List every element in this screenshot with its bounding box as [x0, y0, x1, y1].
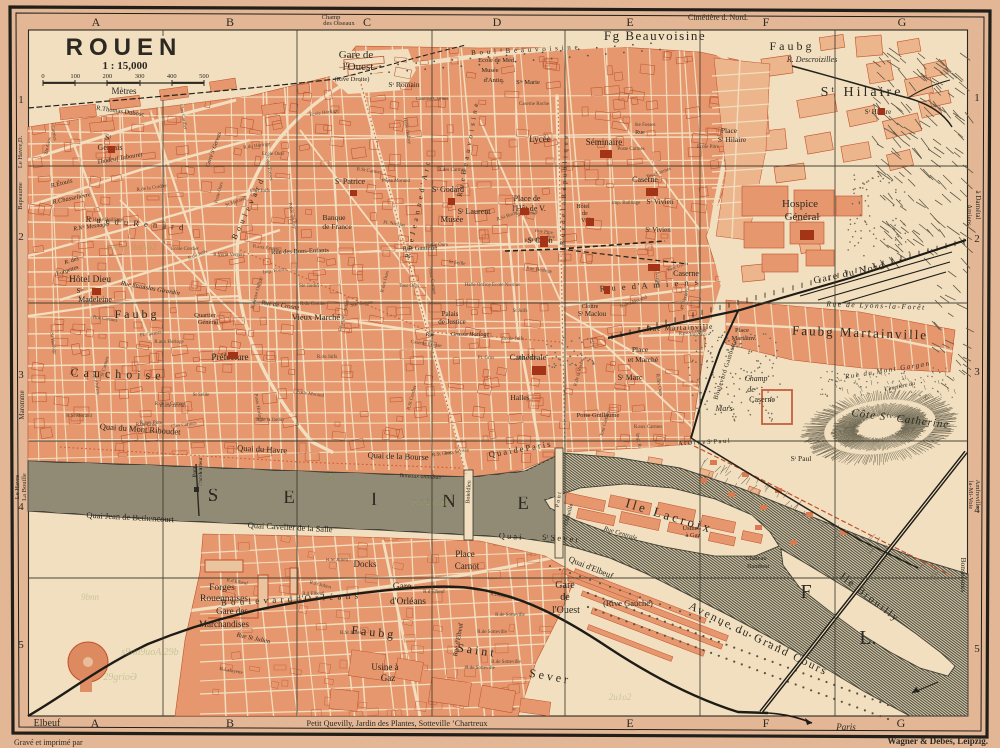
- svg-text:Place: Place: [735, 327, 749, 334]
- svg-text:Sᵗ Hilaire: Sᵗ Hilaire: [821, 85, 904, 100]
- svg-text:Gare: Gare: [555, 580, 575, 591]
- svg-text:F: F: [763, 716, 770, 730]
- svg-text:Imp. Bailliage: Imp. Bailliage: [612, 201, 641, 206]
- svg-text:R.aux Carmes: R.aux Carmes: [634, 425, 662, 430]
- svg-text:Sᵗ Paul: Sᵗ Paul: [791, 454, 812, 463]
- svg-text:Cimétière d. Nord.: Cimétière d. Nord.: [688, 13, 748, 22]
- svg-text:2: 2: [974, 233, 980, 245]
- svg-text:200: 200: [103, 73, 113, 80]
- svg-text:Boieldieu: Boieldieu: [465, 480, 472, 504]
- svg-text:Petit Quevilly, Jardin des Pla: Petit Quevilly, Jardin des Plantes, Sott…: [307, 719, 488, 728]
- svg-text:3: 3: [974, 366, 980, 378]
- svg-text:s9nn9uoA 29b: s9nn9uoA 29b: [121, 647, 178, 658]
- svg-text:Faubg: Faubg: [115, 307, 160, 321]
- svg-text:Palais: Palais: [442, 310, 459, 318]
- svg-text:Porte Guillaume: Porte Guillaume: [577, 412, 620, 419]
- svg-text:Sᵗ Hilaire: Sᵗ Hilaire: [718, 135, 747, 144]
- svg-text:ROUEN: ROUEN: [66, 34, 183, 61]
- svg-text:Mètres: Mètres: [112, 86, 137, 96]
- svg-text:Le Havre,D.: Le Havre,D.: [17, 135, 24, 168]
- svg-text:Hôtel: Hôtel: [576, 204, 590, 210]
- svg-text:Poste Morand: Poste Morand: [382, 179, 410, 184]
- svg-text:Fg Beauvoisine: Fg Beauvoisine: [604, 28, 706, 43]
- svg-text:29grioƏ: 29grioƏ: [103, 672, 137, 683]
- svg-text:300: 300: [135, 73, 145, 80]
- svg-text:Carnot: Carnot: [455, 561, 480, 571]
- svg-text:E: E: [283, 487, 295, 508]
- svg-text:Hospice: Hospice: [782, 198, 818, 210]
- svg-text:Sᵗᵉ Marie: Sᵗᵉ Marie: [516, 79, 540, 86]
- svg-text:Ecole Ours: Ecole Ours: [262, 152, 284, 157]
- svg-text:Sᵗ: Sᵗ: [105, 133, 111, 142]
- svg-text:500: 500: [199, 73, 209, 80]
- svg-text:9nia2 al 9b: 9nia2 al 9b: [412, 498, 448, 507]
- svg-text:Rue: Rue: [635, 130, 645, 136]
- svg-text:Gravé et imprimé par: Gravé et imprimé par: [14, 738, 83, 747]
- svg-text:400: 400: [167, 73, 177, 80]
- svg-text:de Justice: de Justice: [438, 318, 465, 326]
- svg-text:F: F: [800, 581, 811, 603]
- svg-text:Château: Château: [745, 555, 767, 562]
- svg-text:uois eb 9niVo2: uois eb 9niVo2: [104, 242, 157, 252]
- svg-text:Gare des: Gare des: [216, 606, 248, 616]
- svg-text:Gare: Gare: [393, 582, 411, 592]
- svg-text:Elbeuf: Elbeuf: [34, 718, 61, 729]
- svg-text:l'Ouest: l'Ouest: [552, 605, 580, 616]
- svg-text:A: A: [91, 716, 100, 730]
- svg-text:Madeleine: Madeleine: [78, 295, 112, 304]
- svg-text:R.du Juifs: R.du Juifs: [317, 355, 337, 360]
- svg-text:Bapeaume: Bapeaume: [17, 182, 24, 210]
- svg-text:Rue: Rue: [426, 332, 435, 338]
- svg-text:Hôtel Dieu: Hôtel Dieu: [69, 275, 111, 285]
- svg-text:2u1o2: 2u1o2: [609, 692, 632, 702]
- svg-text:Faubg: Faubg: [770, 39, 815, 53]
- svg-text:Caserne: Caserne: [749, 395, 775, 404]
- svg-text:0: 0: [41, 73, 44, 80]
- svg-text:(Rive Droite): (Rive Droite): [335, 76, 370, 83]
- svg-text:L.: L.: [859, 627, 876, 649]
- svg-text:D: D: [493, 15, 502, 29]
- svg-text:Halles: Halles: [510, 393, 529, 402]
- svg-text:Sᵗ Maclou: Sᵗ Maclou: [578, 310, 607, 318]
- svg-text:de: de: [747, 385, 755, 394]
- svg-text:A: A: [92, 15, 101, 29]
- svg-text:Martainv.: Martainv.: [731, 335, 756, 342]
- svg-text:R.d Elbeuf: R.d Elbeuf: [423, 590, 445, 595]
- svg-text:R.St Julien: R.St Julien: [326, 558, 348, 563]
- svg-text:Général: Général: [198, 319, 219, 326]
- svg-text:Place: Place: [721, 126, 738, 135]
- svg-text:R.de Sotteville: R.de Sotteville: [491, 660, 522, 665]
- svg-text:Gare de: Gare de: [339, 49, 374, 61]
- svg-text:R.Verte Vergers: R.Verte Vergers: [213, 253, 245, 258]
- svg-text:Sᵗ Patrice: Sᵗ Patrice: [335, 177, 366, 186]
- svg-text:Forges: Forges: [209, 583, 235, 593]
- svg-text:et Marché: et Marché: [628, 355, 659, 364]
- svg-text:à Gaz: à Gaz: [686, 532, 701, 539]
- svg-text:5: 5: [974, 643, 980, 655]
- svg-text:Bambou: Bambou: [747, 563, 770, 570]
- svg-text:Banque: Banque: [323, 213, 347, 222]
- svg-text:Rue Ganterie: Rue Ganterie: [403, 244, 438, 252]
- svg-text:Pl. Gros: Pl. Gros: [478, 356, 494, 361]
- svg-text:5: 5: [18, 639, 24, 651]
- svg-text:E: E: [626, 15, 633, 29]
- svg-text:3: 3: [18, 369, 24, 381]
- svg-text:Le Havre: Le Havre: [14, 475, 21, 499]
- svg-text:4: 4: [18, 501, 24, 513]
- svg-text:1: 1: [974, 92, 980, 104]
- svg-text:Champ: Champ: [744, 374, 767, 383]
- svg-text:R. Descroizilles: R. Descroizilles: [786, 55, 837, 64]
- svg-text:Rouennaises: Rouennaises: [200, 594, 248, 604]
- svg-text:Sᵗ Godard: Sᵗ Godard: [432, 185, 464, 194]
- svg-text:(Rive Gauche): (Rive Gauche): [603, 598, 653, 608]
- svg-text:Ste Jardin: Ste Jardin: [299, 284, 319, 289]
- svg-text:Wagner & Debes, Leipzig.: Wagner & Debes, Leipzig.: [887, 736, 988, 746]
- svg-text:Général: Général: [785, 211, 820, 223]
- svg-text:G: G: [898, 15, 907, 29]
- svg-text:Quai de la Bourse: Quai de la Bourse: [367, 450, 429, 462]
- svg-text:I: I: [371, 489, 377, 510]
- svg-text:Caserne Roche: Caserne Roche: [519, 102, 550, 107]
- svg-text:la-Mi-Voie: la-Mi-Voie: [967, 481, 974, 510]
- svg-text:Vieux Marché: Vieux Marché: [292, 312, 341, 322]
- svg-text:Place de: Place de: [514, 194, 541, 203]
- svg-text:d'Orléans: d'Orléans: [390, 597, 426, 607]
- svg-text:La Bouille: La Bouille: [21, 473, 28, 501]
- svg-text:Sᵗᵉ: Sᵗᵉ: [76, 287, 83, 295]
- svg-text:1 : 15,000: 1 : 15,000: [103, 60, 148, 72]
- svg-text:Usine: Usine: [682, 525, 697, 532]
- svg-text:R.de Sotteville: R.de Sotteville: [495, 613, 526, 618]
- svg-text:B: B: [226, 716, 234, 730]
- svg-text:R.de la Carmes: R.de la Carmes: [155, 402, 186, 407]
- svg-text:Place: Place: [455, 549, 475, 559]
- svg-text:Poste Carmes: Poste Carmes: [617, 147, 644, 152]
- svg-text:Mars: Mars: [715, 404, 733, 413]
- svg-text:Docks: Docks: [354, 559, 377, 569]
- svg-text:des Oiseaux: des Oiseaux: [323, 20, 355, 27]
- svg-text:2: 2: [18, 231, 24, 243]
- svg-text:E: E: [626, 716, 633, 730]
- svg-text:G: G: [897, 716, 906, 730]
- svg-text:C: C: [363, 15, 371, 29]
- svg-text:9bnn: 9bnn: [81, 592, 100, 602]
- svg-text:d'Antiq.: d'Antiq.: [484, 77, 505, 84]
- svg-text:Marchandises: Marchandises: [199, 619, 249, 629]
- svg-text:Caserne: Caserne: [632, 175, 658, 184]
- svg-text:Cathédrale: Cathédrale: [510, 352, 547, 362]
- svg-text:R.de Sotteville: R.de Sotteville: [465, 666, 496, 671]
- svg-text:de: de: [582, 211, 588, 217]
- svg-text:Musée: Musée: [481, 67, 498, 74]
- svg-text:Maromme: Maromme: [18, 390, 26, 419]
- svg-text:Grosse Horloge: Grosse Horloge: [451, 332, 490, 338]
- svg-text:R.de Sotteville: R.de Sotteville: [477, 630, 508, 635]
- svg-text:R.St Morand: R.St Morand: [66, 414, 92, 419]
- svg-text:Musée: Musée: [441, 214, 464, 224]
- svg-text:Bonsecours: Bonsecours: [959, 558, 968, 593]
- svg-text:St Seille: St Seille: [193, 393, 211, 398]
- svg-text:l'Ouest: l'Ouest: [343, 61, 374, 73]
- svg-text:Transbordeur: Transbordeur: [198, 457, 204, 487]
- svg-text:Lycée: Lycée: [529, 134, 551, 144]
- svg-text:Ecole Cordier: Ecole Cordier: [171, 247, 199, 252]
- svg-text:Halle Onfroy: Halle Onfroy: [465, 283, 492, 288]
- svg-text:à Darnétal: à Darnétal: [974, 191, 982, 220]
- svg-text:100: 100: [70, 73, 80, 80]
- svg-text:Séminaire: Séminaire: [586, 137, 623, 147]
- svg-text:1: 1: [18, 94, 24, 106]
- svg-text:E: E: [517, 493, 529, 514]
- svg-text:ll9b: ll9b: [324, 473, 336, 482]
- svg-text:Ste Fosses: Ste Fosses: [635, 123, 656, 128]
- svg-text:Sᵗ Romain: Sᵗ Romain: [388, 80, 419, 89]
- svg-text:B: B: [226, 15, 234, 29]
- svg-text:Quartier: Quartier: [194, 312, 216, 319]
- svg-text:Place: Place: [632, 345, 649, 354]
- svg-text:Usine à: Usine à: [371, 662, 398, 672]
- svg-text:Paris: Paris: [835, 722, 856, 732]
- svg-text:Amfreville-: Amfreville-: [974, 480, 981, 511]
- svg-text:F: F: [763, 15, 770, 29]
- svg-text:Gaz: Gaz: [381, 673, 396, 683]
- svg-text:S: S: [208, 485, 219, 506]
- svg-text:St Juifs: St Juifs: [513, 309, 528, 314]
- svg-text:Sᵗ Marc: Sᵗ Marc: [618, 373, 643, 382]
- svg-text:de: de: [560, 592, 570, 603]
- svg-text:Ecole Nicolas: Ecole Nicolas: [492, 283, 520, 288]
- svg-text:Amiens: Amiens: [965, 204, 973, 226]
- svg-text:Q u a i: Q u a i: [498, 530, 522, 542]
- svg-text:Ecole de Méd.: Ecole de Méd.: [478, 57, 516, 64]
- svg-text:de France: de France: [322, 222, 352, 231]
- svg-text:R.aux Horloge: R.aux Horloge: [154, 340, 184, 345]
- svg-text:Sᵗ Vivien: Sᵗ Vivien: [646, 197, 674, 206]
- svg-text:Sᵗ Vivien: Sᵗ Vivien: [645, 226, 671, 234]
